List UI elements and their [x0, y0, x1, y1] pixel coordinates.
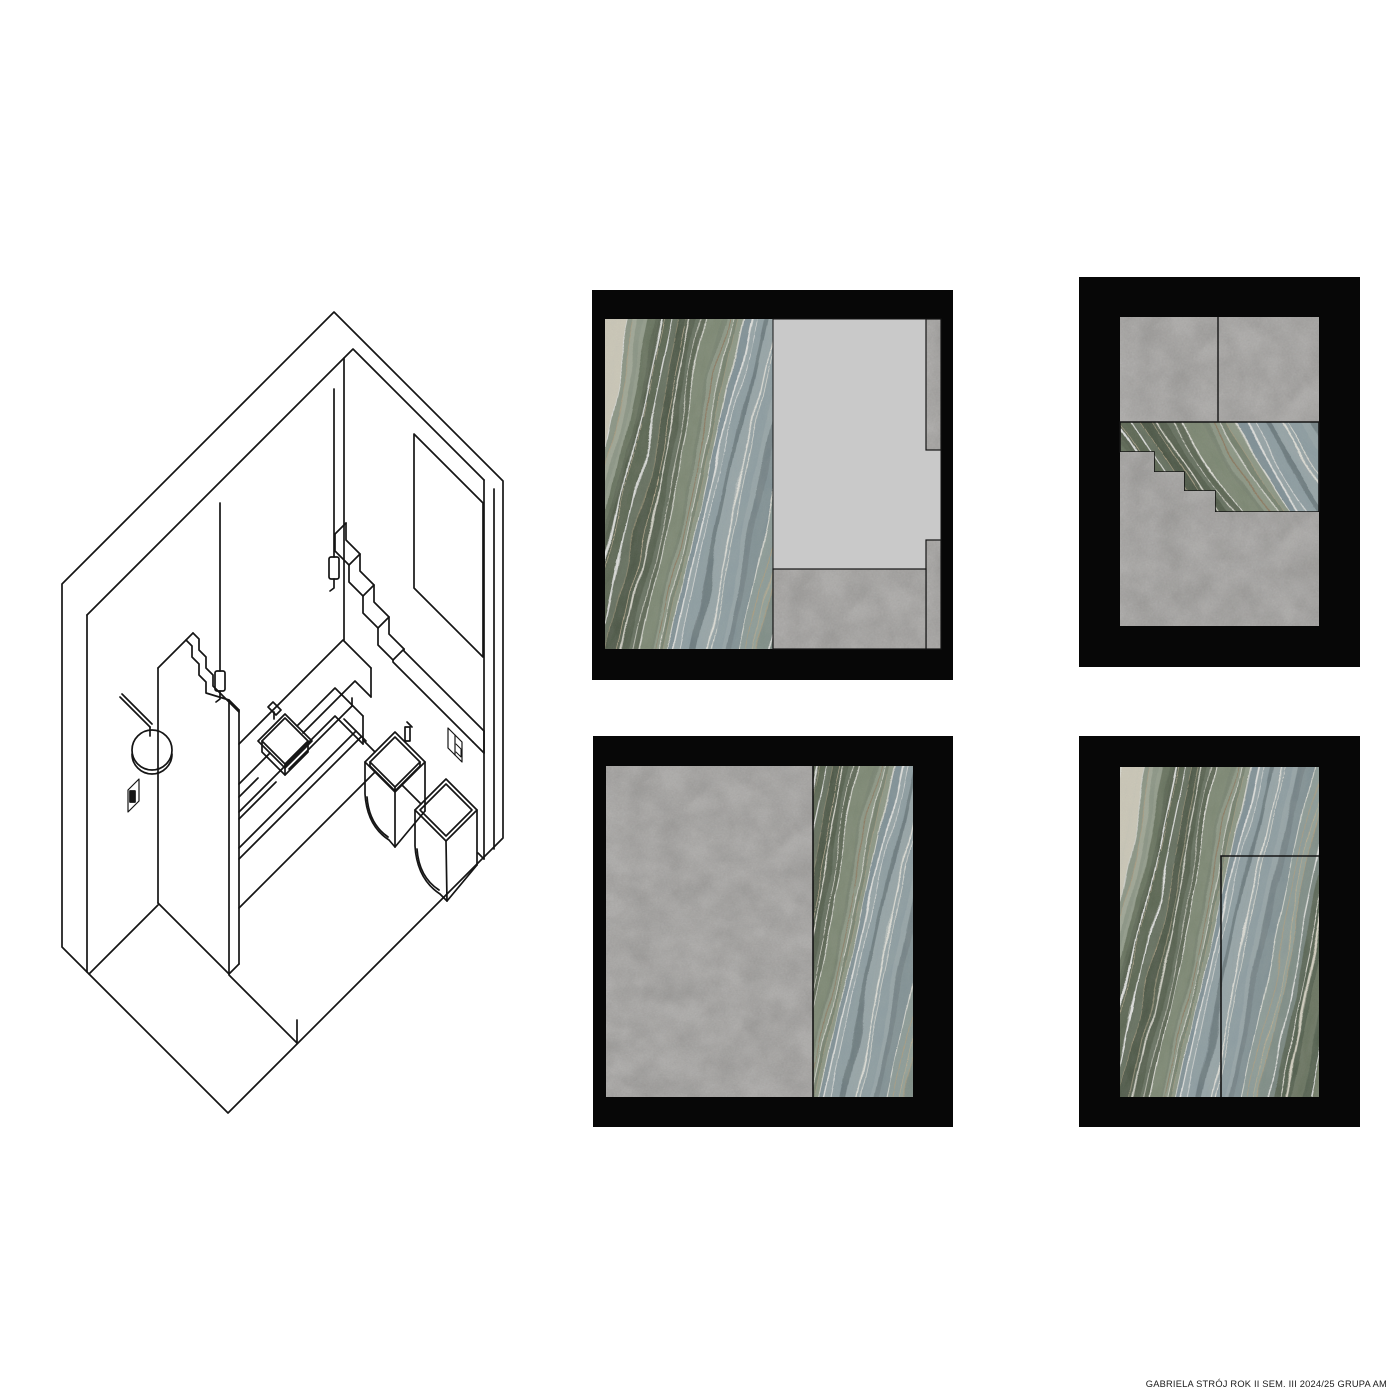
- svg-text:GABRIELA STRÓJ ROK II SEM. III: GABRIELA STRÓJ ROK II SEM. III 2024/25 G…: [1146, 1379, 1387, 1389]
